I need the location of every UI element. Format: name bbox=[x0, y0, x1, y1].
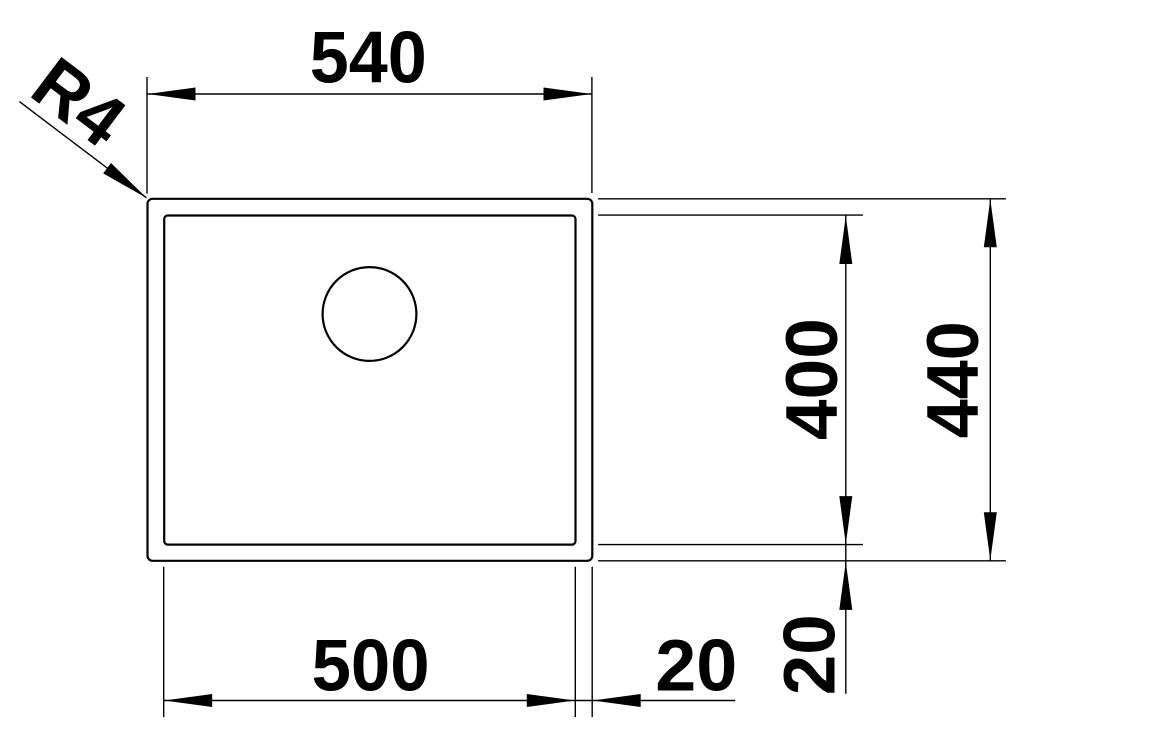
svg-text:400: 400 bbox=[770, 318, 853, 440]
svg-text:20: 20 bbox=[655, 624, 737, 707]
svg-text:20: 20 bbox=[767, 614, 850, 695]
svg-text:500: 500 bbox=[312, 624, 430, 707]
svg-text:540: 540 bbox=[310, 16, 427, 99]
svg-text:440: 440 bbox=[911, 321, 994, 438]
